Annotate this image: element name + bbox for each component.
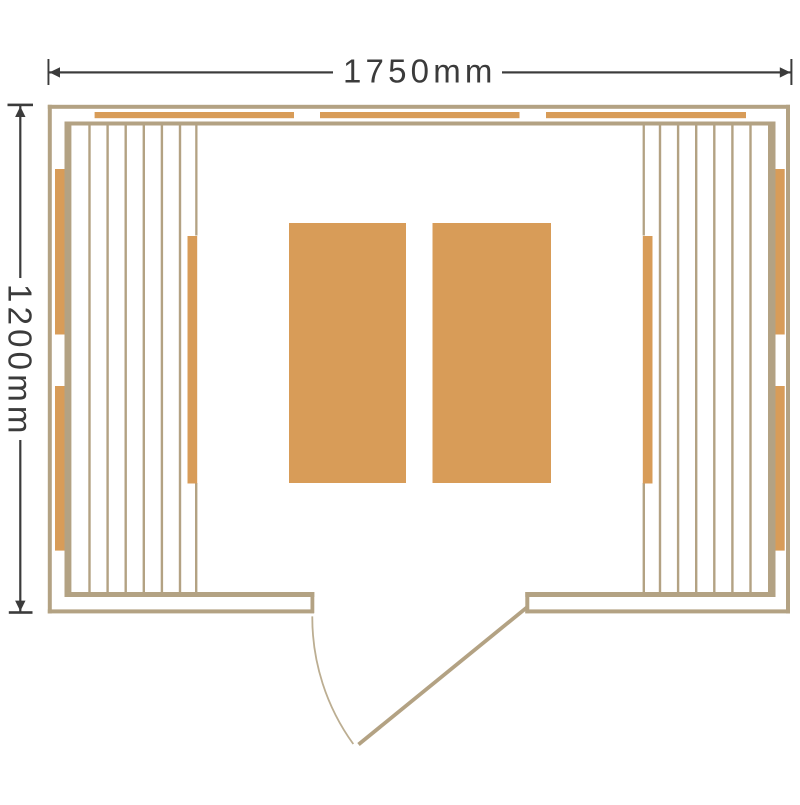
svg-text:1200mm: 1200mm (1, 284, 38, 438)
svg-text:1750mm: 1750mm (343, 53, 497, 90)
